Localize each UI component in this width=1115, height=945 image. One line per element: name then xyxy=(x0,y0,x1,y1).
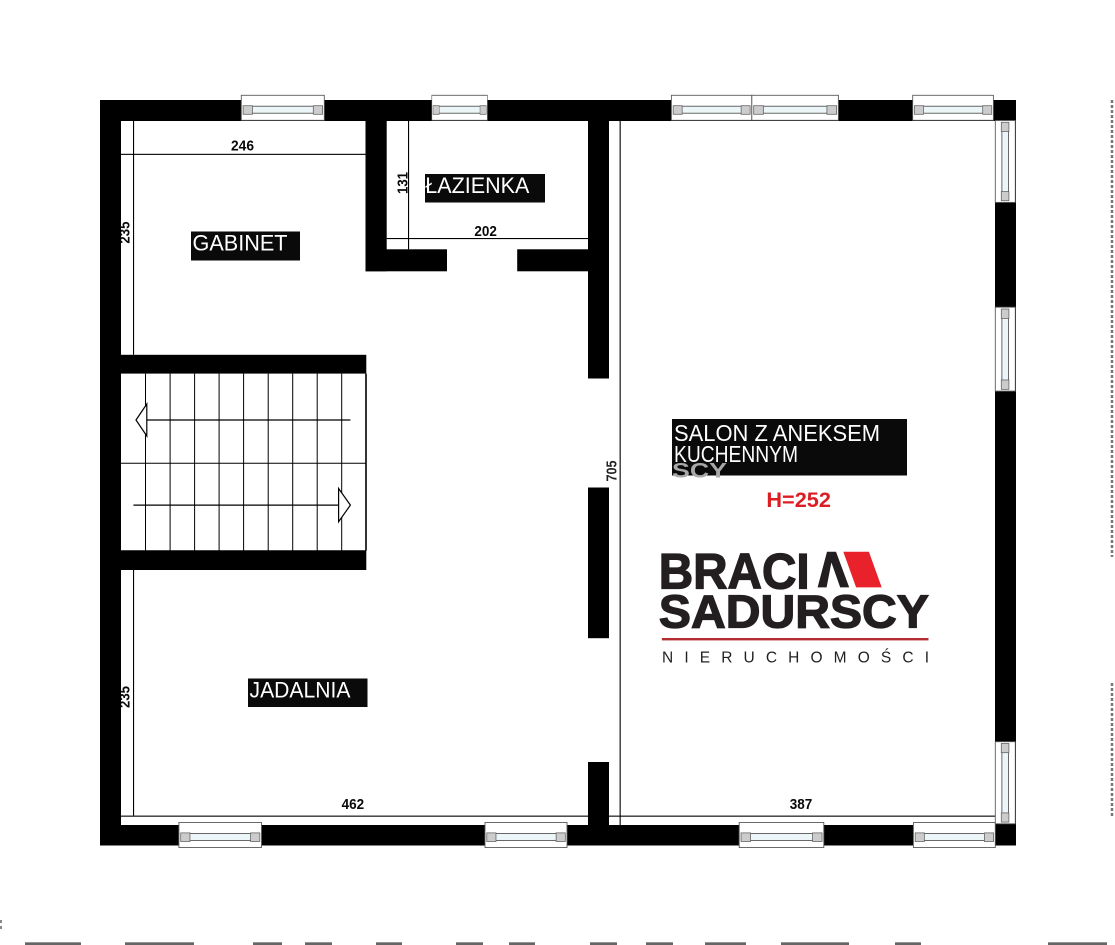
svg-text:GABINET: GABINET xyxy=(193,230,288,255)
svg-text:ŁAZIENKA: ŁAZIENKA xyxy=(425,173,529,198)
svg-text:462: 462 xyxy=(342,796,365,813)
svg-text:SADURSCY: SADURSCY xyxy=(659,586,929,638)
svg-text:705: 705 xyxy=(604,461,621,482)
svg-text:SCY: SCY xyxy=(672,458,727,482)
svg-text:JADALNIA: JADALNIA xyxy=(250,678,351,703)
svg-text:387: 387 xyxy=(790,796,813,813)
svg-text:246: 246 xyxy=(231,137,254,154)
svg-text:H=252: H=252 xyxy=(766,488,831,512)
svg-text:NIERUCHOMOŚCI: NIERUCHOMOŚCI xyxy=(662,649,929,667)
svg-text:131: 131 xyxy=(394,172,411,194)
svg-text:202: 202 xyxy=(474,223,497,240)
